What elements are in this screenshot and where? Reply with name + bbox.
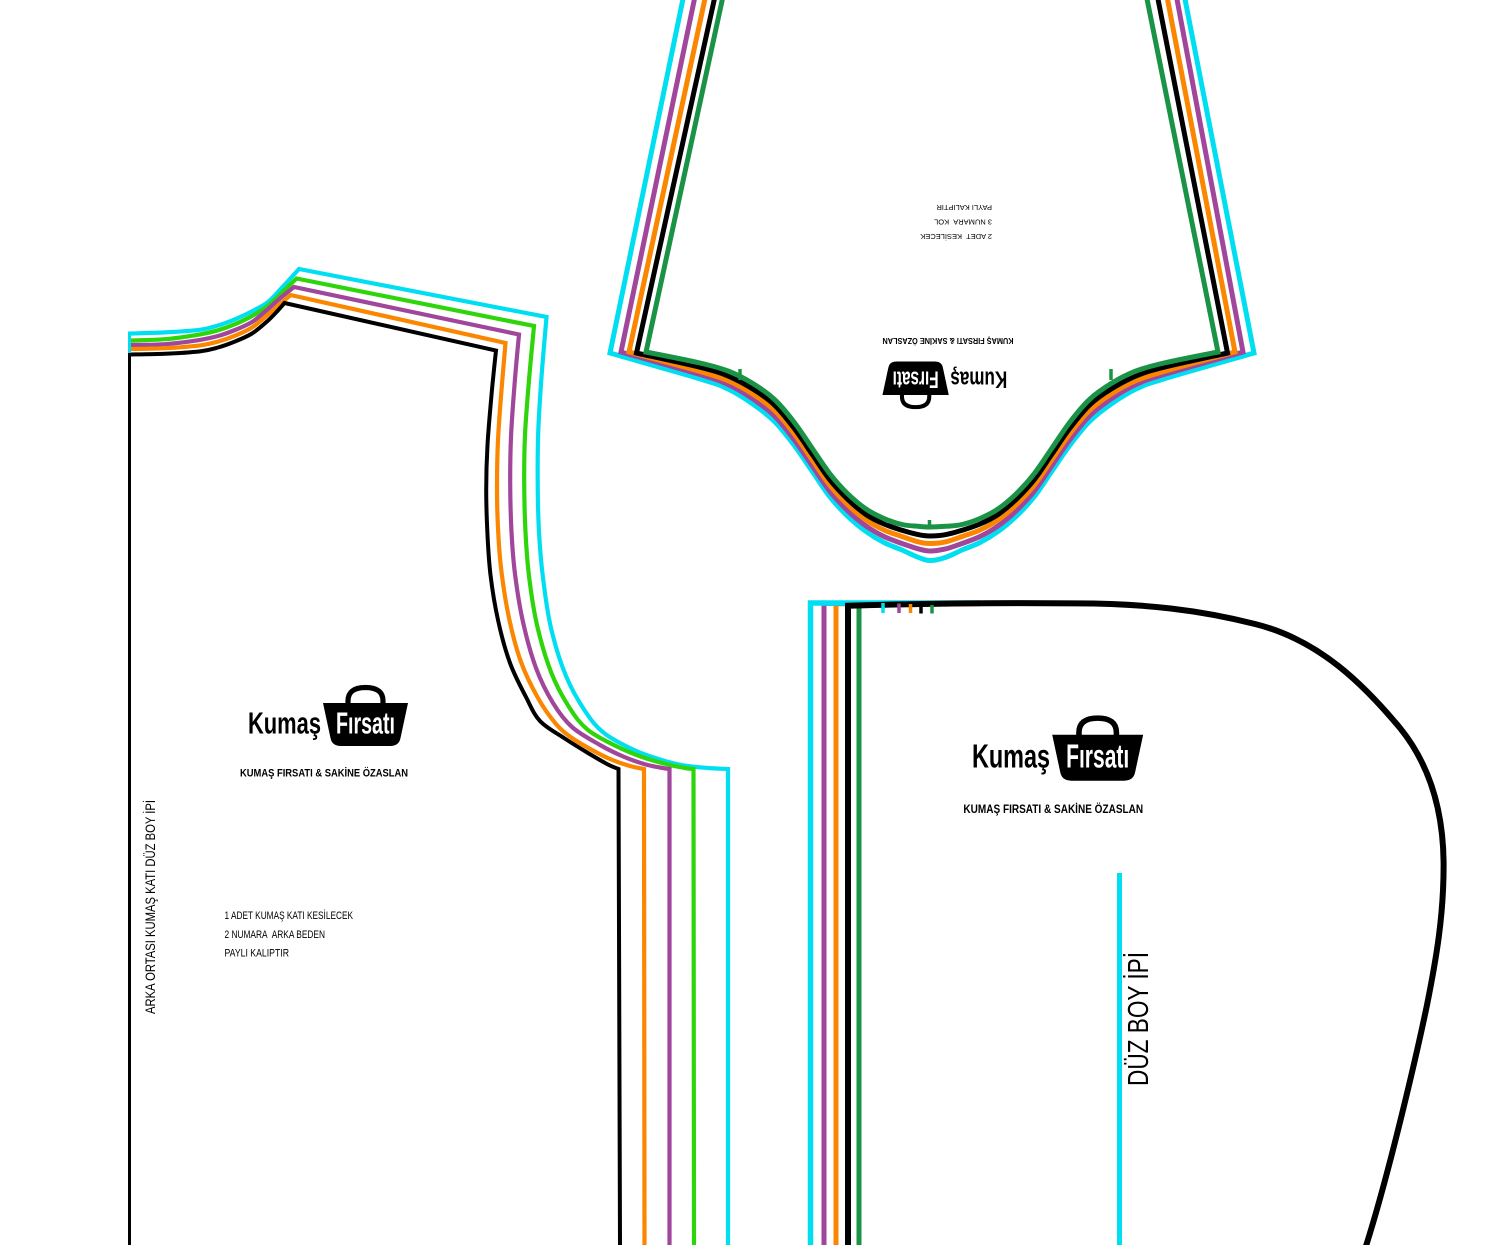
svg-text:3 NUMARA KOL: 3 NUMARA KOL [934, 218, 992, 227]
svg-text:DÜZ BOY İPİ: DÜZ BOY İPİ [1122, 952, 1155, 1086]
svg-text:1 ADET KUMAŞ KATI KESİLECEK: 1 ADET KUMAŞ KATI KESİLECEK [225, 909, 354, 922]
svg-text:ARKA ORTASI KUMAŞ KATI DÜZ BOY: ARKA ORTASI KUMAŞ KATI DÜZ BOY İPİ [141, 800, 159, 1014]
svg-text:2 NUMARA ARKA BEDEN: 2 NUMARA ARKA BEDEN [225, 929, 326, 941]
svg-text:PAYLI KALIPTIR: PAYLI KALIPTIR [225, 948, 290, 960]
svg-text:2 ADET KESİLECEK: 2 ADET KESİLECEK [920, 232, 992, 241]
svg-text:PAYLI KALIPTIR: PAYLI KALIPTIR [936, 203, 992, 212]
